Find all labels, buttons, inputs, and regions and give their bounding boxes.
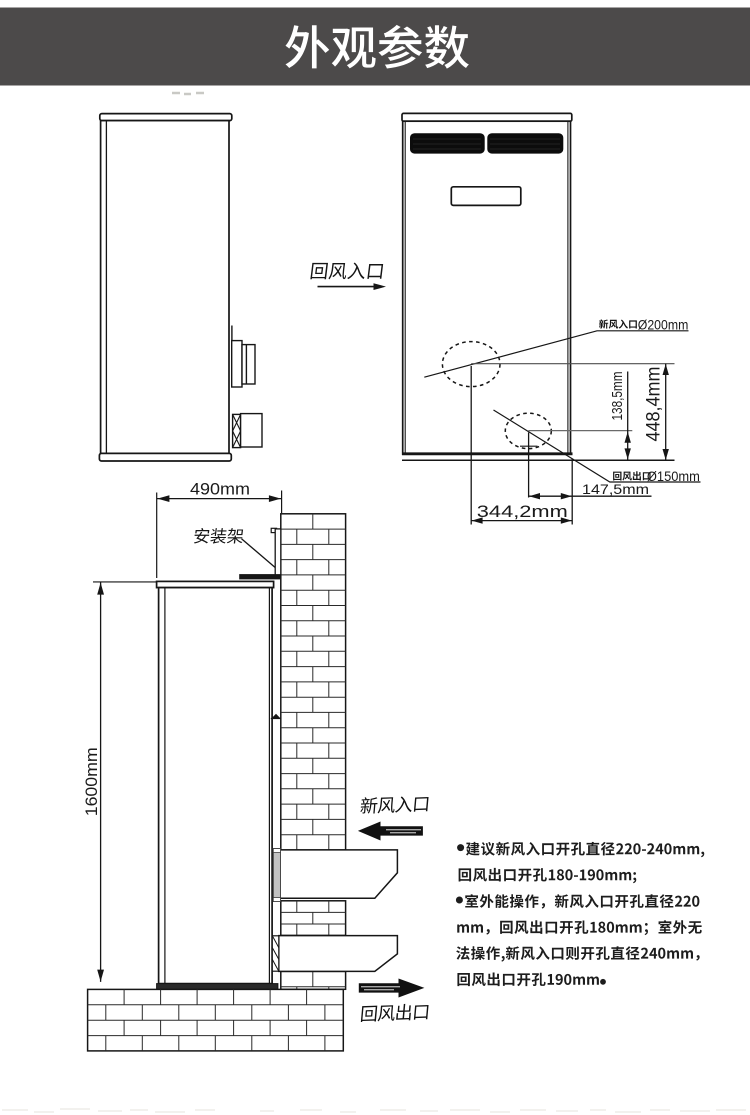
svg-text:Ø200mm: Ø200mm xyxy=(638,317,689,333)
svg-text:147,5mm: 147,5mm xyxy=(582,481,649,497)
svg-text:448,4mm: 448,4mm xyxy=(643,367,665,442)
svg-text:344,2mm: 344,2mm xyxy=(477,503,568,521)
svg-text:Ø150mm: Ø150mm xyxy=(647,468,700,484)
svg-text:138,5mm: 138,5mm xyxy=(610,372,626,421)
svg-text:1600mm: 1600mm xyxy=(82,747,101,816)
svg-text:490mm: 490mm xyxy=(190,479,250,498)
